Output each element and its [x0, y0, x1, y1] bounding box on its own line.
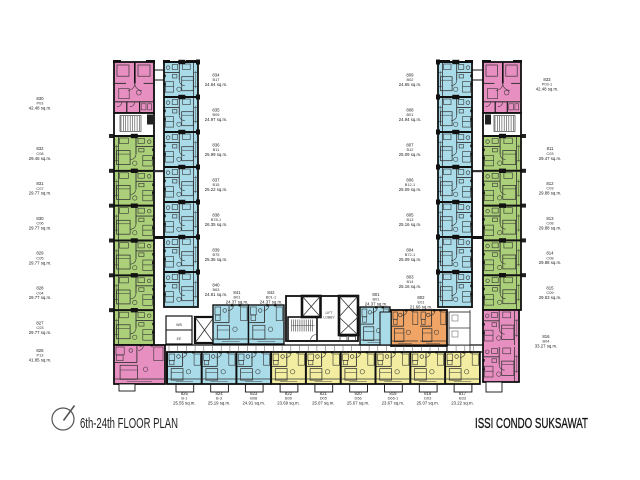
svg-text:24.65 sq.m.: 24.65 sq.m. [399, 82, 421, 87]
svg-text:42.48 sq.m.: 42.48 sq.m. [29, 105, 51, 110]
svg-text:29.77 sq.m.: 29.77 sq.m. [29, 225, 51, 230]
svg-text:ISSI CONDO SUKSAWAT: ISSI CONDO SUKSAWAT [475, 415, 588, 432]
svg-text:23.67 sq.m.: 23.67 sq.m. [382, 400, 404, 405]
svg-text:23.69 sq.m.: 23.69 sq.m. [277, 400, 299, 405]
svg-text:24.64 sq.m.: 24.64 sq.m. [205, 82, 227, 87]
svg-text:25.55 sq.m.: 25.55 sq.m. [173, 400, 195, 405]
svg-text:29.88 sq.m.: 29.88 sq.m. [539, 260, 561, 265]
svg-text:25.09 sq.m.: 25.09 sq.m. [399, 187, 421, 192]
svg-text:24.97 sq.m.: 24.97 sq.m. [205, 117, 227, 122]
svg-text:23.22 sq.m.: 23.22 sq.m. [451, 400, 473, 405]
svg-text:25.16 sq.m.: 25.16 sq.m. [399, 284, 421, 289]
svg-text:42.48 sq.m.: 42.48 sq.m. [536, 86, 558, 91]
svg-text:LIFT: LIFT [326, 311, 333, 315]
svg-text:29.47 sq.m.: 29.47 sq.m. [539, 156, 561, 161]
svg-text:25.99 sq.m.: 25.99 sq.m. [205, 152, 227, 157]
svg-text:24.37 sq.m.: 24.37 sq.m. [260, 299, 282, 304]
svg-text:29.53 sq.m.: 29.53 sq.m. [539, 295, 561, 300]
svg-text:25.22 sq.m.: 25.22 sq.m. [205, 187, 227, 192]
svg-text:29.77 sq.m.: 29.77 sq.m. [29, 191, 51, 196]
svg-text:29.77 sq.m.: 29.77 sq.m. [29, 295, 51, 300]
svg-text:25.09 sq.m.: 25.09 sq.m. [399, 257, 421, 262]
svg-text:25.07 sq.m.: 25.07 sq.m. [416, 400, 438, 405]
svg-text:24.81 sq.m.: 24.81 sq.m. [205, 292, 227, 297]
svg-text:29.77 sq.m.: 29.77 sq.m. [29, 330, 51, 335]
svg-text:29.88 sq.m.: 29.88 sq.m. [539, 225, 561, 230]
svg-text:24.37 sq.m.: 24.37 sq.m. [226, 299, 248, 304]
svg-text:25.07 sq.m.: 25.07 sq.m. [312, 400, 334, 405]
svg-text:41.85 sq.m.: 41.85 sq.m. [29, 357, 51, 362]
svg-text:EE: EE [177, 337, 182, 341]
svg-text:25.16 sq.m.: 25.16 sq.m. [399, 222, 421, 227]
svg-text:33.27 sq.m.: 33.27 sq.m. [535, 343, 557, 348]
svg-text:6th-24th FLOOR PLAN: 6th-24th FLOOR PLAN [80, 415, 178, 432]
svg-text:LOBBY: LOBBY [323, 315, 335, 319]
svg-text:21.66 sq.m.: 21.66 sq.m. [410, 304, 432, 309]
svg-text:24.91 sq.m.: 24.91 sq.m. [243, 400, 265, 405]
svg-text:25.19 sq.m.: 25.19 sq.m. [208, 400, 230, 405]
svg-text:24.37 sq.m.: 24.37 sq.m. [365, 301, 387, 306]
svg-text:29.45 sq.m.: 29.45 sq.m. [29, 156, 51, 161]
svg-text:29.77 sq.m.: 29.77 sq.m. [29, 260, 51, 265]
svg-text:29.88 sq.m.: 29.88 sq.m. [539, 191, 561, 196]
svg-text:24.94 sq.m.: 24.94 sq.m. [399, 117, 421, 122]
svg-text:25.09 sq.m.: 25.09 sq.m. [399, 152, 421, 157]
svg-text:25.35 sq.m.: 25.35 sq.m. [205, 257, 227, 262]
svg-text:WB: WB [176, 323, 182, 327]
svg-text:25.67 sq.m.: 25.67 sq.m. [347, 400, 369, 405]
svg-text:26.35 sq.m.: 26.35 sq.m. [205, 222, 227, 227]
